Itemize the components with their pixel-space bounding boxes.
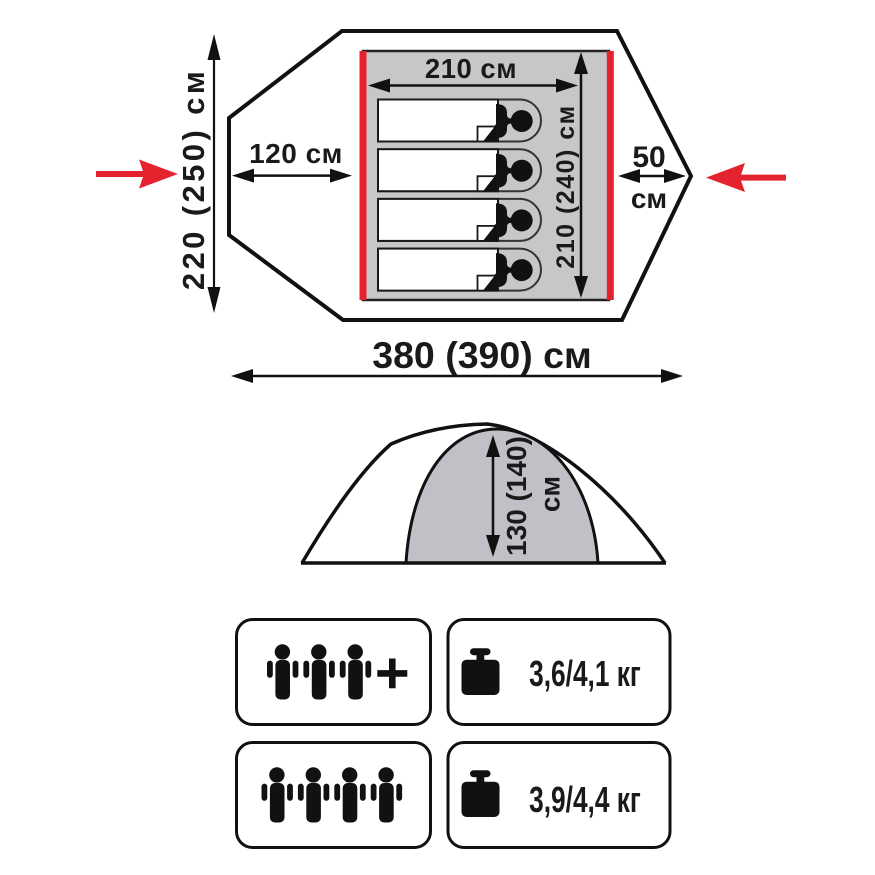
svg-text:380 (390) см: 380 (390) см — [372, 334, 592, 376]
svg-text:см: см — [631, 183, 667, 214]
svg-text:210 (240) см: 210 (240) см — [552, 104, 580, 268]
svg-text:см: см — [535, 476, 566, 512]
svg-text:50: 50 — [632, 141, 665, 174]
svg-text:130 (140): 130 (140) — [501, 436, 532, 556]
svg-text:220 (250) см: 220 (250) см — [176, 68, 211, 290]
svg-text:3,9/4,4 кг: 3,9/4,4 кг — [529, 779, 641, 820]
svg-text:3,6/4,1 кг: 3,6/4,1 кг — [529, 653, 641, 694]
svg-text:120 см: 120 см — [249, 138, 343, 169]
svg-text:210 см: 210 см — [425, 53, 517, 84]
